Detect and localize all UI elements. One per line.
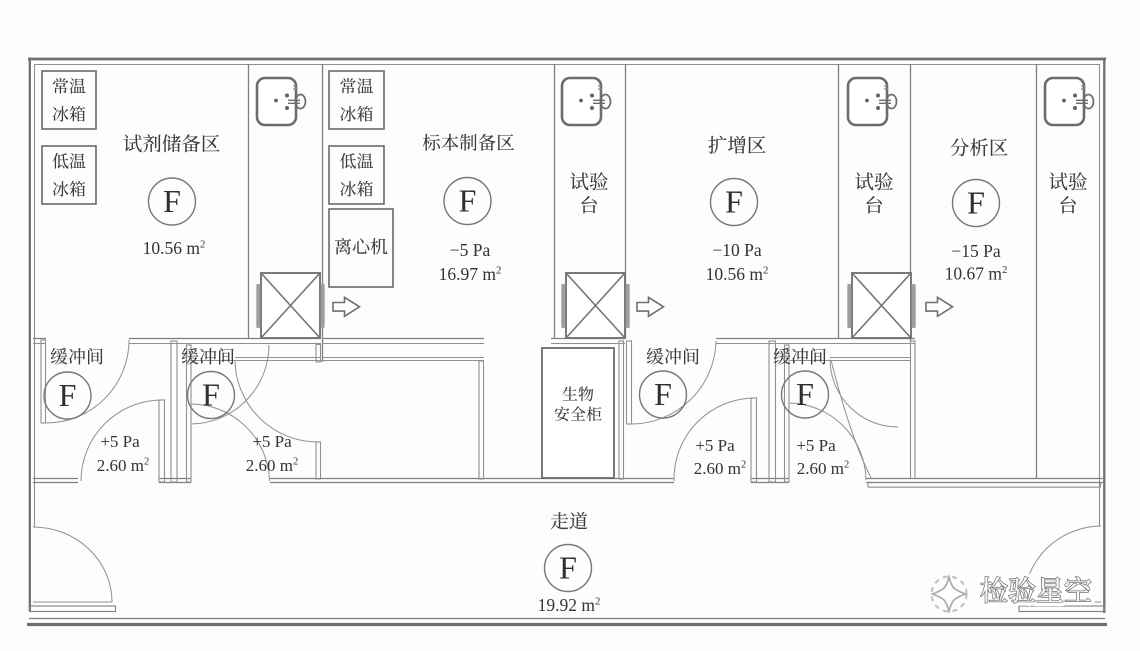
svg-text:10.56 m2: 10.56 m2 xyxy=(143,238,206,258)
svg-text:−15 Pa: −15 Pa xyxy=(951,241,1000,261)
svg-text:2.60 m2: 2.60 m2 xyxy=(694,459,746,478)
svg-text:19.92 m2: 19.92 m2 xyxy=(538,595,601,615)
svg-text:2.60 m2: 2.60 m2 xyxy=(797,459,849,478)
svg-text:+5 Pa: +5 Pa xyxy=(695,436,735,455)
svg-text:F: F xyxy=(725,184,743,220)
svg-text:+5 Pa: +5 Pa xyxy=(252,432,292,451)
svg-text:F: F xyxy=(967,185,985,221)
svg-text:2.60 m2: 2.60 m2 xyxy=(97,456,149,475)
svg-text:F: F xyxy=(654,376,672,412)
svg-text:F: F xyxy=(202,377,220,413)
svg-text:F: F xyxy=(559,550,577,586)
svg-text:2.60 m2: 2.60 m2 xyxy=(246,456,298,475)
svg-text:F: F xyxy=(163,183,181,219)
svg-text:16.97 m2: 16.97 m2 xyxy=(439,264,502,284)
svg-text:−5 Pa: −5 Pa xyxy=(450,240,491,260)
svg-text:F: F xyxy=(796,376,814,412)
svg-text:+5 Pa: +5 Pa xyxy=(796,436,836,455)
svg-text:F: F xyxy=(459,183,477,219)
svg-text:10.67 m2: 10.67 m2 xyxy=(945,264,1008,284)
svg-text:+5 Pa: +5 Pa xyxy=(100,432,140,451)
svg-text:F: F xyxy=(59,377,77,413)
svg-text:10.56 m2: 10.56 m2 xyxy=(706,264,769,284)
svg-text:−10 Pa: −10 Pa xyxy=(712,240,761,260)
